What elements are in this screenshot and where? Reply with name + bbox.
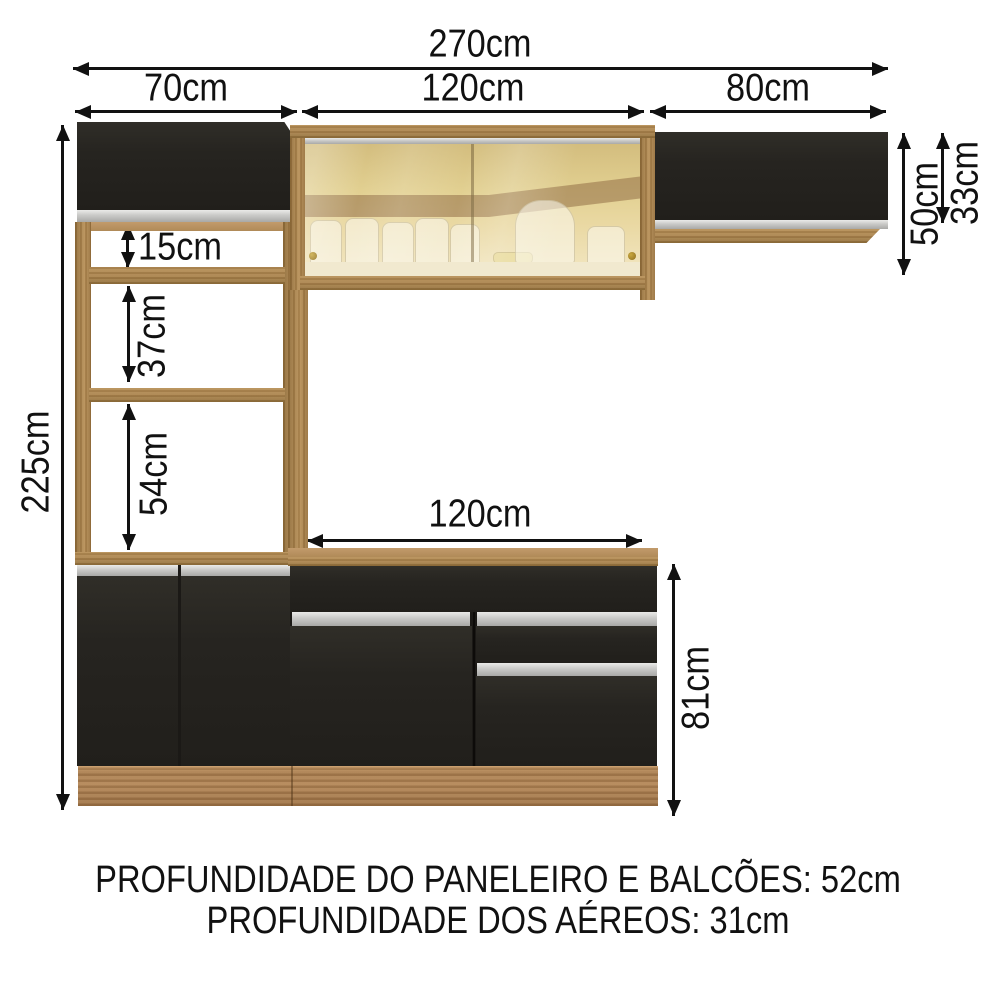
right-cabinet-door	[655, 132, 888, 220]
dim-counter-width-label: 120cm	[428, 495, 531, 534]
dim-niche-bottom-label: 54cm	[135, 432, 174, 516]
paneleiro-base-door-right	[181, 576, 290, 766]
dim-total-height-label: 225cm	[17, 410, 56, 513]
dim-right-width-arrow	[650, 110, 886, 113]
countertop-inner	[288, 548, 658, 557]
right-cabinet-bottom	[655, 229, 880, 243]
footer-depth-line-1: PROFUNDIDADE DO PANELEIRO E BALCÕES: 52c…	[95, 861, 901, 899]
dim-right-width-label: 80cm	[726, 69, 810, 108]
counter-handle-right-lower	[477, 663, 657, 676]
dim-middle-width-label: 120cm	[421, 69, 524, 108]
glass-cabinet-frame-right	[640, 125, 655, 300]
countertop-front	[288, 557, 658, 566]
paneleiro-shelf-lower	[89, 388, 285, 402]
dim-glass-cabinet-height-label: 50cm	[906, 162, 945, 246]
counter-door-left	[290, 626, 472, 766]
paneleiro-base-handle-right	[181, 565, 290, 576]
dim-counter-height-label: 81cm	[677, 646, 716, 730]
dim-middle-width-arrow	[302, 110, 644, 113]
glass-cabinet-sill	[305, 262, 640, 276]
glass-cabinet-frame-left	[290, 125, 305, 290]
dim-total-height-arrow	[61, 125, 64, 810]
glass-cabinet-doors	[305, 144, 640, 262]
counter-divider-seam	[473, 612, 475, 766]
kitchen-dimension-diagram: 270cm 70cm 120cm 80cm 225cm 15cm 37cm 54…	[0, 0, 1000, 1000]
counter-handle-left	[292, 612, 470, 626]
support-column	[288, 290, 308, 557]
dim-left-width-label: 70cm	[144, 69, 228, 108]
glass-cabinet-frame-bottom	[300, 276, 645, 290]
dim-left-width-arrow	[75, 110, 297, 113]
dim-right-cabinet-height-label: 33cm	[946, 141, 985, 225]
paneleiro-top-door	[77, 122, 293, 210]
paneleiro-base-door-left	[77, 576, 178, 766]
counter-door-right	[476, 676, 657, 766]
footer-depth-line-2: PROFUNDIDADE DOS AÉREOS: 31cm	[207, 902, 790, 940]
dim-niche-bottom-arrow	[127, 404, 130, 550]
glass-sheen	[305, 144, 640, 262]
paneleiro-base-handle-left	[77, 565, 178, 576]
paneleiro-shelf-upper	[89, 267, 285, 284]
paneleiro-top-panel	[77, 222, 293, 231]
plinth-seam	[291, 766, 293, 806]
counter-drawer-right	[476, 626, 657, 663]
dim-counter-width-arrow	[307, 539, 642, 542]
right-cabinet-handle	[655, 220, 888, 229]
counter-handle-right	[477, 612, 657, 626]
dim-total-width-label: 270cm	[428, 25, 531, 64]
paneleiro-base-top	[75, 552, 308, 565]
plinth	[78, 766, 658, 806]
paneleiro-top-door-handle	[77, 210, 293, 222]
counter-drawer-band	[290, 566, 657, 612]
dim-niche-top-label: 15cm	[138, 228, 222, 267]
glass-cabinet-frame-top	[290, 125, 655, 138]
dim-niche-middle-label: 37cm	[133, 294, 172, 378]
